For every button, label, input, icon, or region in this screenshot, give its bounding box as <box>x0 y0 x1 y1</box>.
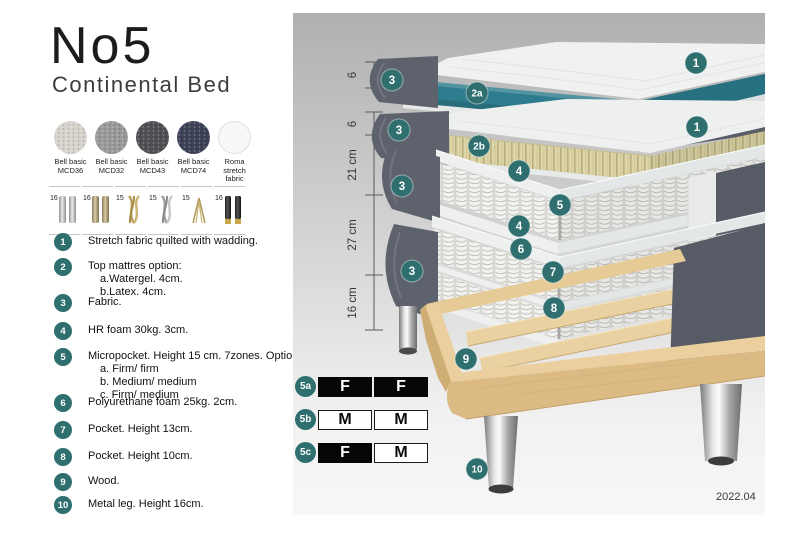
svg-text:3: 3 <box>389 75 395 87</box>
fabric-swatch-circle <box>136 121 169 154</box>
firmness-row-badge: 5c <box>295 442 316 463</box>
svg-text:7: 7 <box>550 267 556 279</box>
legend-text: Wood. <box>88 475 120 488</box>
legend-number-badge: 3 <box>54 294 72 312</box>
callout-1-stretch-fabric: 1 <box>686 116 708 138</box>
firmness-cell: M <box>318 410 372 430</box>
legend-number-badge: 6 <box>54 394 72 412</box>
leg-option: 16 <box>82 186 113 235</box>
page-title: No5 <box>50 16 154 76</box>
callout-10-metal-leg: 10 <box>466 458 488 480</box>
legend-number-badge: 1 <box>54 233 72 251</box>
svg-text:4: 4 <box>516 221 523 233</box>
callout-3-fabric: 3 <box>388 119 410 141</box>
fabric-code: stretch fabric <box>216 167 253 184</box>
leg-option: 15 <box>181 186 212 235</box>
firmness-row-badge: 5b <box>295 409 316 430</box>
svg-text:1: 1 <box>693 58 700 70</box>
callout-3-fabric: 3 <box>401 260 423 282</box>
hairpin-leg-icon <box>189 193 211 227</box>
legend-item-2: 2 Top mattres option: a.Watergel. 4cm. b… <box>54 258 183 299</box>
legend-subtext: a. Firm/ firm <box>100 363 301 376</box>
callout-9-wood: 9 <box>455 348 477 370</box>
callout-4-hr-foam: 4 <box>508 215 530 237</box>
callout-7-pocket: 7 <box>542 261 564 283</box>
firmness-cell: M <box>374 410 428 430</box>
legend-item-6: 6 Polyurethane foam 25kg. 2cm. <box>54 394 237 412</box>
legend-item-9: 9 Wood. <box>54 473 120 491</box>
firmness-cell: F <box>318 443 372 463</box>
fabric-swatch: Bell basicMCD36 <box>52 121 89 184</box>
fabric-swatch: Bell basicMCD74 <box>175 121 212 184</box>
silver-cylinder-leg-icon <box>57 193 79 227</box>
firmness-row-badge: 5a <box>295 376 316 397</box>
legend-item-8: 8 Pocket. Height 10cm. <box>54 448 193 466</box>
legend-number-badge: 2 <box>54 258 72 276</box>
svg-text:8: 8 <box>551 303 558 315</box>
legend-number-badge: 8 <box>54 448 72 466</box>
fabric-swatch-circle <box>177 121 210 154</box>
legend-subtext: a.Watergel. 4cm. <box>100 273 183 286</box>
svg-text:9: 9 <box>463 354 469 366</box>
legend-number-badge: 4 <box>54 322 72 340</box>
measurement-label: 21 cm <box>347 149 359 180</box>
legend-text: Micropocket. Height 15 cm. 7zones. Optio… <box>88 350 301 363</box>
svg-text:4: 4 <box>516 166 523 178</box>
firmness-cell: F <box>318 377 372 397</box>
leg-option: 15 <box>115 186 146 235</box>
legend-text: Polyurethane foam 25kg. 2cm. <box>88 396 237 409</box>
legend-text: Metal leg. Height 16cm. <box>88 498 204 511</box>
product-sheet: No5 Continental Bed Bell basicMCD36 Bell… <box>0 0 800 533</box>
legend-subtext: b. Medium/ medium <box>100 376 301 389</box>
firmness-cell: M <box>374 443 428 463</box>
legend-text: Fabric. <box>88 296 122 309</box>
callout-3-fabric: 3 <box>391 175 413 197</box>
legend-text: HR foam 30kg. 3cm. <box>88 324 188 337</box>
svg-text:10: 10 <box>471 465 483 476</box>
callout-8-pocket: 8 <box>543 297 565 319</box>
legend-text: Top mattres option: <box>88 260 183 273</box>
callout-2b-latex: 2b <box>468 135 490 157</box>
callout-6-polyurethane: 6 <box>510 238 532 260</box>
fabric-code: MCD43 <box>134 167 171 176</box>
legend-item-1: 1 Stretch fabric quilted with wadding. <box>54 233 258 251</box>
right-leg <box>700 384 742 466</box>
callout-5-micropocket: 5 <box>549 194 571 216</box>
legend-number-badge: 9 <box>54 473 72 491</box>
gold-twisted-leg-icon <box>123 193 145 227</box>
legend-item-10: 10 Metal leg. Height 16cm. <box>54 496 204 514</box>
fabric-swatch-circle <box>95 121 128 154</box>
firmness-row-5a: 5a F F <box>295 376 428 397</box>
svg-text:5: 5 <box>557 200 564 212</box>
legend-number-badge: 5 <box>54 348 72 366</box>
black-gold-tip-leg-icon <box>222 193 244 227</box>
fabric-code: MCD32 <box>93 167 130 176</box>
legend-item-4: 4 HR foam 30kg. 3cm. <box>54 322 188 340</box>
svg-text:3: 3 <box>396 125 402 137</box>
legend-number-badge: 7 <box>54 421 72 439</box>
silver-twisted-leg-icon <box>156 193 178 227</box>
callout-4-hr-foam: 4 <box>508 160 530 182</box>
svg-text:2a: 2a <box>471 89 483 100</box>
svg-text:1: 1 <box>694 122 701 134</box>
svg-text:3: 3 <box>409 266 415 278</box>
firmness-row-5b: 5b M M <box>295 409 428 430</box>
legend-item-3: 3 Fabric. <box>54 294 122 312</box>
fabric-code: MCD74 <box>175 167 212 176</box>
fabric-code: MCD36 <box>52 167 89 176</box>
svg-text:2b: 2b <box>473 142 485 153</box>
callout-3-fabric: 3 <box>381 69 403 91</box>
firmness-row-5c: 5c F M <box>295 442 428 463</box>
fabric-swatch-circle <box>54 121 87 154</box>
firmness-table: 5a F F 5b M M 5c F M <box>295 376 428 475</box>
fabric-swatch: Romastretch fabric <box>216 121 253 184</box>
measurement-label: 6 <box>347 121 359 127</box>
measurement-label: 16 cm <box>347 287 359 318</box>
page-subtitle: Continental Bed <box>52 72 231 98</box>
firmness-cell: F <box>374 377 428 397</box>
legend-number-badge: 10 <box>54 496 72 514</box>
legend-text: Pocket. Height 13cm. <box>88 423 193 436</box>
callout-2a-watergel: 2a <box>466 82 488 104</box>
fabric-swatch: Bell basicMCD32 <box>93 121 130 184</box>
revision-date: 2022.04 <box>716 491 756 503</box>
bronze-cylinder-leg-icon <box>90 193 112 227</box>
leg-option: 15 <box>148 186 179 235</box>
measurement-label: 6 <box>347 72 359 78</box>
legend-item-7: 7 Pocket. Height 13cm. <box>54 421 193 439</box>
svg-text:3: 3 <box>399 181 405 193</box>
callout-1-stretch-fabric: 1 <box>685 52 707 74</box>
measurement-label: 27 cm <box>347 219 359 250</box>
fabric-swatch: Bell basicMCD43 <box>134 121 171 184</box>
legend-text: Stretch fabric quilted with wadding. <box>88 235 258 248</box>
leg-option: 16 <box>214 186 245 235</box>
fabric-swatches: Bell basicMCD36 Bell basicMCD32 Bell bas… <box>52 121 253 184</box>
leg-options: 16 16 15 15 15 16 <box>49 186 245 235</box>
fabric-swatch-circle <box>218 121 251 154</box>
back-left-leg <box>399 306 417 355</box>
svg-text:6: 6 <box>518 244 524 256</box>
leg-option: 16 <box>49 186 80 235</box>
front-leg <box>484 416 518 494</box>
legend-text: Pocket. Height 10cm. <box>88 450 193 463</box>
